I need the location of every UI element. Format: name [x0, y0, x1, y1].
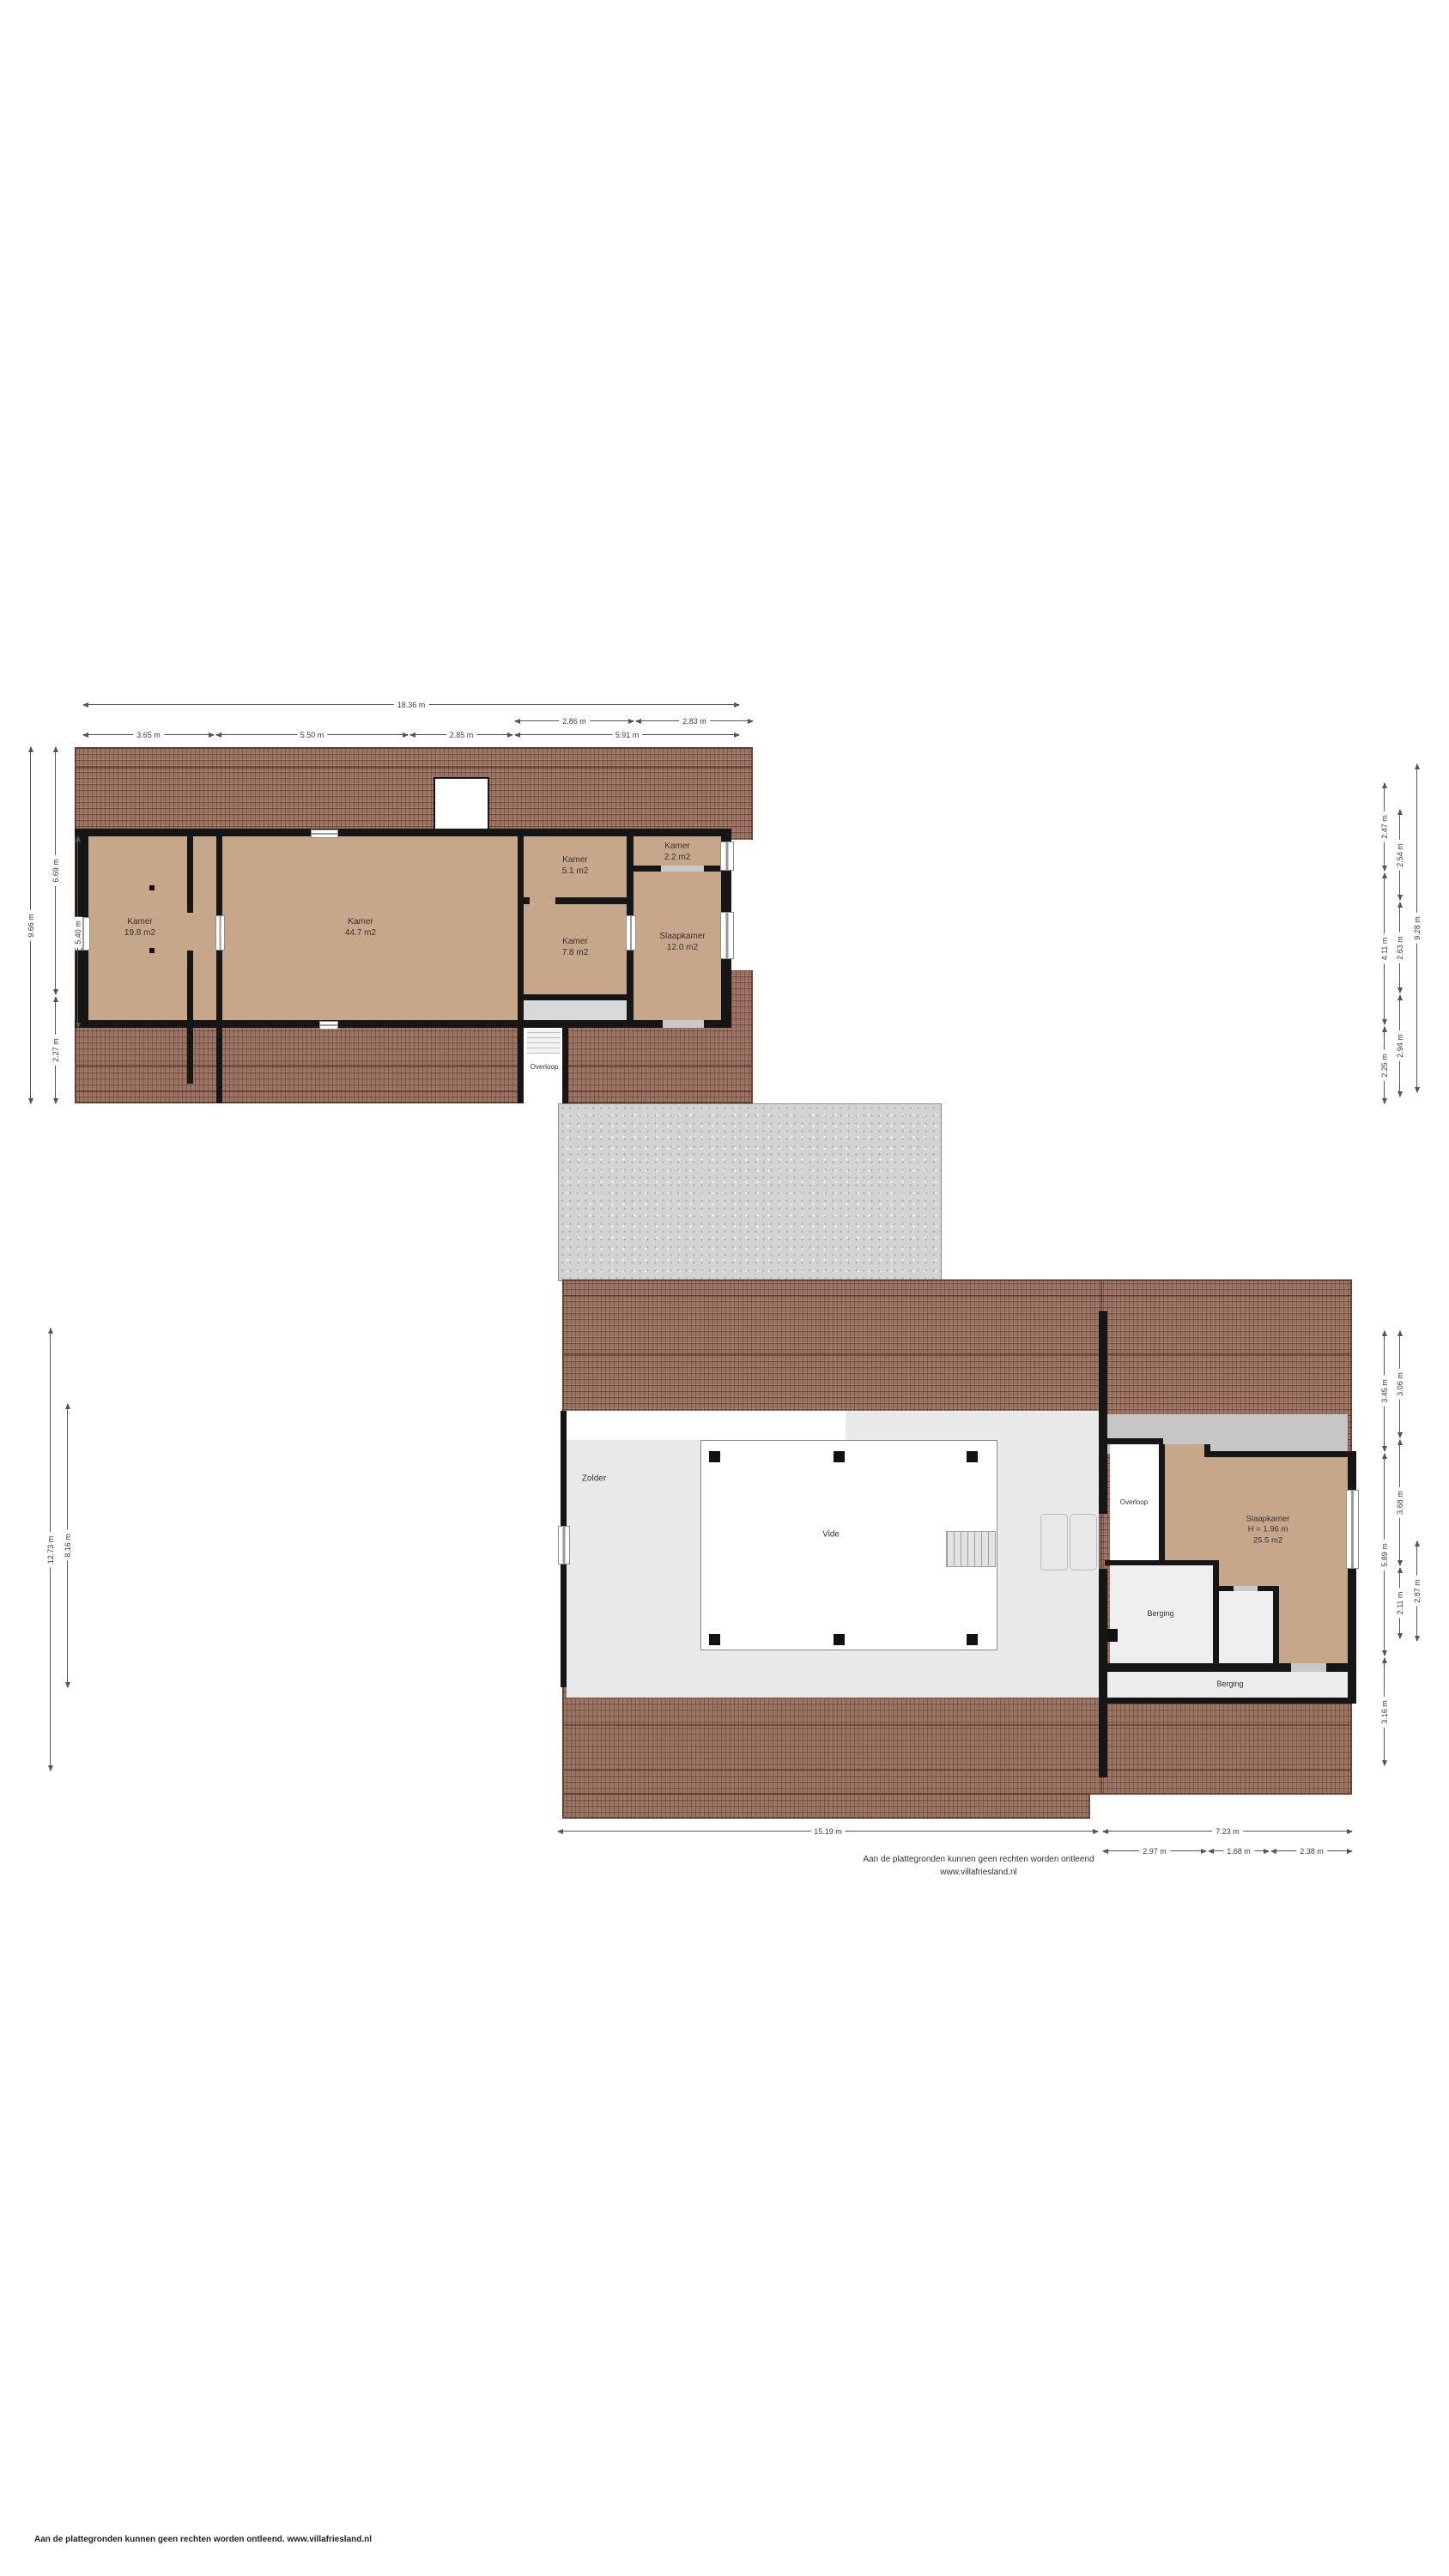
- dim-value: 5.50 m: [297, 731, 328, 739]
- dim-value: 5.91 m: [612, 731, 643, 739]
- dim-f2-bottom-left: 15.19 m: [558, 1831, 1098, 1832]
- window: [558, 1526, 570, 1564]
- wall: [1099, 1569, 1107, 1777]
- room-area: 44.7 m2: [345, 927, 376, 939]
- wall: [1213, 1565, 1219, 1666]
- column: [149, 885, 155, 890]
- plan-disclaimer: Aan de plattegronden kunnen geen rechten…: [863, 1853, 1094, 1879]
- floor1-right-bay: [731, 840, 753, 970]
- room-name: Slaapkamer: [659, 931, 705, 942]
- floor2-roof-lower-left: [562, 1793, 1090, 1819]
- dim-value: 2.87 m: [1413, 1576, 1422, 1607]
- dim-f2-bottom-sub-2: 1.68 m: [1209, 1850, 1269, 1851]
- floor2-roof-ridge: [564, 1724, 1350, 1726]
- disclaimer-line1: Aan de plattegronden kunnen geen rechten…: [863, 1853, 1094, 1866]
- wall: [1159, 1444, 1165, 1565]
- dim-f1-top-total: 18.36 m: [83, 704, 739, 705]
- floor1-dormer: [433, 777, 489, 836]
- disclaimer-link: www.villafriesland.nl: [863, 1866, 1094, 1879]
- floor1-roof-ridge: [76, 1091, 751, 1092]
- room-label-zolder: Zolder: [582, 1473, 606, 1485]
- floor2-roof-ridge: [564, 1353, 1350, 1355]
- dim-value: 3.45 m: [1380, 1376, 1389, 1406]
- dim-value: 2.27 m: [52, 1035, 60, 1066]
- dim-value: 3.65 m: [133, 731, 164, 739]
- room-area: 25.5 m2: [1246, 1535, 1290, 1546]
- dim-value: 5.40 m: [74, 917, 82, 948]
- dim-value: 7.23 m: [1212, 1827, 1243, 1836]
- column: [1107, 1629, 1118, 1642]
- door: [1291, 1663, 1326, 1672]
- door-leaf: [1040, 1514, 1068, 1571]
- window: [720, 912, 734, 959]
- floorplan-page: Kamer 19.8 m2 Kamer 44.7 m2 Kamer 5.1 m2…: [0, 0, 1449, 2576]
- floor1-roof-ridge: [76, 767, 751, 769]
- dim-f2-bottom-sub-3: 2.38 m: [1271, 1850, 1352, 1851]
- dim-value: 2.85 m: [446, 731, 477, 739]
- window: [720, 841, 734, 871]
- dim-f1-seg-3: 2.85 m: [410, 734, 512, 735]
- stairs: [946, 1531, 996, 1567]
- window: [311, 829, 338, 838]
- dim-f1-right-inner-3: 2.25 m: [1384, 1027, 1385, 1103]
- dim-value: 18.36 m: [394, 701, 429, 709]
- room-area: 12.0 m2: [659, 942, 705, 953]
- window: [215, 915, 225, 951]
- dim-f1-seg-2: 5.50 m: [216, 734, 408, 735]
- wall: [518, 836, 524, 1103]
- dim-value: 2.97 m: [1139, 1847, 1170, 1856]
- dim-value: 2.25 m: [1380, 1050, 1389, 1081]
- dim-f2-right-inner-1: 3.45 m: [1384, 1331, 1385, 1451]
- dim-value: 2.38 m: [1296, 1847, 1327, 1856]
- floor2-zolder-top-strip: [567, 1411, 846, 1440]
- room-name: Zolder: [582, 1473, 606, 1485]
- wall: [1105, 1698, 1356, 1704]
- room-label-slaapkamer-f2: Slaapkamer H = 1.96 m 25.5 m2: [1246, 1514, 1290, 1546]
- room-area: 19.8 m2: [124, 927, 155, 939]
- dim-f2-bottom-sub-1: 2.97 m: [1103, 1850, 1206, 1851]
- dim-value: 2.54 m: [1396, 840, 1404, 871]
- page-footer-text: Aan de plattegronden kunnen geen rechten…: [34, 2535, 372, 2544]
- dim-f2-right-inner-3: 3.16 m: [1384, 1658, 1385, 1765]
- dim-f1-right-inner-2: 4.11 m: [1384, 873, 1385, 1024]
- dim-value: 2.11 m: [1396, 1589, 1404, 1619]
- column: [709, 1451, 720, 1462]
- wall: [524, 897, 530, 904]
- dim-f1-top-sub-1: 2.86 m: [515, 720, 634, 721]
- wall: [1099, 1311, 1107, 1514]
- dim-value: 2.63 m: [1396, 933, 1404, 963]
- dim-f2-bottom-right: 7.23 m: [1103, 1831, 1352, 1832]
- dim-value: 3.68 m: [1396, 1487, 1404, 1518]
- wall: [216, 836, 222, 1103]
- dim-f1-left-mid-1: 6.69 m: [55, 747, 56, 994]
- column: [709, 1634, 720, 1645]
- room-label-kamer-2-2: Kamer 2.2 m2: [664, 841, 691, 863]
- room-name: Kamer: [562, 854, 589, 866]
- room-area: 7.8 m2: [562, 947, 589, 958]
- dim-f2-left-outer: 12.73 m: [50, 1328, 51, 1771]
- floor1-overloop-stairs: [527, 1030, 561, 1054]
- dim-value: 6.69 m: [52, 855, 60, 886]
- dim-value: 3.06 m: [1396, 1369, 1404, 1400]
- room-label-vide: Vide: [822, 1529, 840, 1540]
- dim-value: 15.19 m: [810, 1827, 846, 1836]
- column: [967, 1634, 978, 1645]
- window: [626, 915, 636, 951]
- room-height: H = 1.96 m: [1246, 1525, 1290, 1535]
- column: [149, 948, 155, 953]
- dim-value: 9.28 m: [1413, 913, 1422, 944]
- dim-f1-seg-1: 3.65 m: [83, 734, 214, 735]
- wall: [1105, 1560, 1219, 1565]
- dim-value: 12.73 m: [46, 1532, 55, 1567]
- column: [834, 1451, 845, 1462]
- door: [663, 1020, 704, 1028]
- floor2-roof-ridge: [564, 1295, 1350, 1297]
- floor2-small-room: [1219, 1591, 1273, 1663]
- room-label-overloop-f1: Overloop: [530, 1063, 558, 1072]
- room-label-berging-2: Berging: [1216, 1680, 1243, 1690]
- room-name: Kamer: [562, 936, 589, 947]
- column: [834, 1634, 845, 1645]
- dim-value: 4.11 m: [1380, 934, 1389, 964]
- dim-value: 2.83 m: [679, 717, 710, 726]
- dim-f2-right-inner-2: 5.89 m: [1384, 1454, 1385, 1656]
- wall: [75, 829, 731, 836]
- wall: [1105, 1438, 1163, 1444]
- dim-f1-right-mid-3: 2.94 m: [1399, 995, 1400, 1097]
- wall: [187, 951, 193, 1084]
- room-label-kamer-5-1: Kamer 5.1 m2: [562, 854, 589, 877]
- column: [967, 1451, 978, 1462]
- dim-value: 1.68 m: [1223, 1847, 1254, 1856]
- room-name: Overloop: [530, 1063, 558, 1072]
- room-name: Overloop: [1120, 1498, 1148, 1507]
- room-name: Slaapkamer: [1246, 1514, 1290, 1524]
- dim-f1-right-mid-2: 2.63 m: [1399, 902, 1400, 993]
- page-footer: Aan de plattegronden kunnen geen rechten…: [34, 2535, 372, 2544]
- wall: [1348, 1451, 1356, 1698]
- floor1-roof-ridge: [76, 1065, 751, 1066]
- wall: [562, 1028, 568, 1103]
- room-name: Vide: [822, 1529, 840, 1540]
- window: [1346, 1490, 1359, 1569]
- floor2-slaapkamer-notch: [1165, 1444, 1204, 1457]
- dim-value: 2.86 m: [559, 717, 590, 726]
- room-area: 5.1 m2: [562, 866, 589, 877]
- wall: [518, 994, 628, 1000]
- room-name: Kamer: [345, 916, 376, 927]
- dim-f1-top-sub-2: 2.83 m: [636, 720, 753, 721]
- room-label-kamer-19-8: Kamer 19.8 m2: [124, 916, 155, 939]
- dim-value: 3.16 m: [1380, 1697, 1389, 1728]
- dim-f2-right-mid-2: 3.68 m: [1399, 1440, 1400, 1565]
- floor2-concrete-block: [558, 1103, 942, 1281]
- dim-f2-right-mid-3: 2.11 m: [1399, 1568, 1400, 1638]
- dim-f1-right-inner-1: 2.47 m: [1384, 783, 1385, 871]
- room-name: Berging: [1147, 1609, 1173, 1619]
- room-label-slaapkamer-12: Slaapkamer 12.0 m2: [659, 931, 705, 953]
- room-name: Berging: [1216, 1680, 1243, 1690]
- window: [319, 1021, 338, 1030]
- dim-value: 8.16 m: [64, 1530, 72, 1561]
- dim-f1-right-outer: 9.28 m: [1416, 764, 1417, 1092]
- room-label-overloop-f2: Overloop: [1120, 1498, 1148, 1507]
- room-label-berging-1: Berging: [1147, 1609, 1173, 1619]
- wall: [555, 897, 627, 904]
- floor2-roof-ridge: [564, 1769, 1350, 1771]
- dim-value: 2.94 m: [1396, 1030, 1404, 1061]
- room-name: Kamer: [664, 841, 691, 852]
- dim-f2-right-outer: 2.87 m: [1416, 1541, 1417, 1641]
- dim-f1-right-mid-1: 2.54 m: [1399, 810, 1400, 900]
- dim-f1-seg-4: 5.91 m: [515, 734, 739, 735]
- room-name: Kamer: [124, 916, 155, 927]
- wall: [1273, 1586, 1279, 1663]
- floor1-stairwell-area: [524, 1000, 628, 1020]
- door-leaf: [1070, 1514, 1097, 1571]
- room-label-kamer-44-7: Kamer 44.7 m2: [345, 916, 376, 939]
- wall: [187, 836, 193, 913]
- dim-value: 2.47 m: [1380, 811, 1389, 842]
- dim-f1-left-inner: 5.40 m: [77, 836, 78, 1028]
- dim-f2-left-inner: 8.16 m: [67, 1404, 68, 1687]
- room-label-kamer-7-8: Kamer 7.8 m2: [562, 936, 589, 958]
- dim-f1-left-mid-2: 2.27 m: [55, 997, 56, 1103]
- dim-value: 5.89 m: [1380, 1540, 1389, 1571]
- wall: [1204, 1451, 1348, 1457]
- dim-f2-right-mid-1: 3.06 m: [1399, 1331, 1400, 1437]
- dim-f1-left-outer: 9.66 m: [30, 747, 31, 1103]
- door: [661, 866, 704, 872]
- room-area: 2.2 m2: [664, 852, 691, 863]
- dim-value: 9.66 m: [27, 910, 35, 941]
- door: [1234, 1586, 1258, 1591]
